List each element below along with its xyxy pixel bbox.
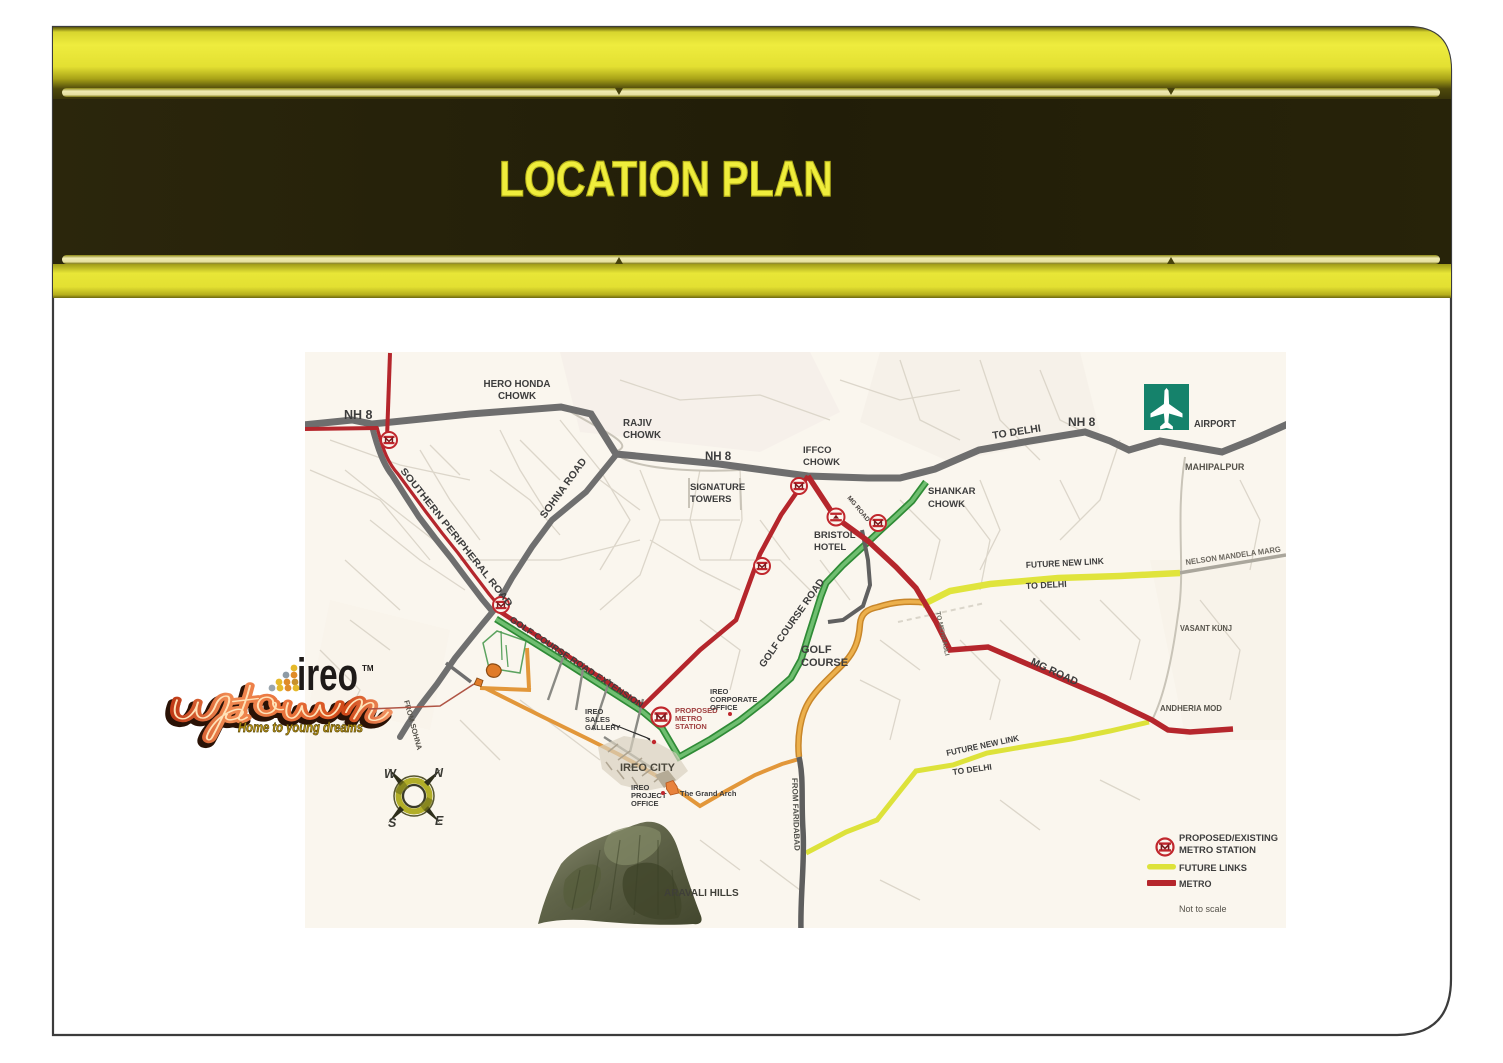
svg-text:Home to young dreams: Home to young dreams — [238, 720, 363, 735]
svg-text:S: S — [388, 816, 397, 830]
svg-text:STATION: STATION — [675, 722, 707, 731]
svg-text:ireo: ireo — [297, 649, 358, 700]
svg-text:HOTEL: HOTEL — [814, 542, 846, 553]
svg-text:OFFICE: OFFICE — [631, 799, 659, 808]
svg-text:FUTURE LINKS: FUTURE LINKS — [1179, 863, 1247, 873]
svg-text:AIRPORT: AIRPORT — [1194, 419, 1236, 430]
svg-text:N: N — [434, 766, 444, 780]
svg-text:TO DELHI: TO DELHI — [1026, 579, 1067, 591]
svg-text:COURSE: COURSE — [801, 657, 848, 669]
svg-text:The Grand Arch: The Grand Arch — [680, 789, 737, 798]
svg-text:RAJIV: RAJIV — [623, 418, 652, 429]
svg-text:TM: TM — [362, 664, 374, 673]
svg-text:Not to scale: Not to scale — [1179, 904, 1227, 914]
svg-text:IREO CITY: IREO CITY — [620, 762, 676, 774]
svg-text:NH 8: NH 8 — [705, 451, 732, 463]
svg-text:NH 8: NH 8 — [1068, 415, 1096, 429]
svg-text:GOLF: GOLF — [801, 644, 832, 656]
svg-text:PROPOSED/EXISTING: PROPOSED/EXISTING — [1179, 833, 1278, 843]
svg-text:OFFICE: OFFICE — [710, 703, 738, 712]
svg-text:W: W — [384, 767, 397, 781]
svg-text:ANDHERIA MOD: ANDHERIA MOD — [1160, 703, 1222, 713]
svg-text:IFFCO: IFFCO — [803, 445, 832, 456]
svg-text:MAHIPALPUR: MAHIPALPUR — [1185, 462, 1245, 472]
svg-text:GALLERY: GALLERY — [585, 723, 621, 732]
svg-text:VASANT KUNJ: VASANT KUNJ — [1180, 623, 1232, 633]
svg-text:CHOWK: CHOWK — [623, 430, 661, 441]
svg-text:CHOWK: CHOWK — [928, 499, 965, 510]
svg-text:SIGNATURE: SIGNATURE — [690, 482, 745, 493]
svg-text:TOWERS: TOWERS — [690, 494, 732, 505]
svg-text:CHOWK: CHOWK — [803, 457, 840, 468]
svg-text:METRO STATION: METRO STATION — [1179, 845, 1256, 855]
svg-text:ARAVALI HILLS: ARAVALI HILLS — [664, 888, 739, 899]
svg-text:NH 8: NH 8 — [344, 408, 373, 422]
svg-text:HERO HONDA: HERO HONDA — [484, 379, 551, 390]
svg-text:CHOWK: CHOWK — [498, 391, 536, 402]
svg-text:E: E — [435, 814, 444, 828]
svg-text:SHANKAR: SHANKAR — [928, 486, 976, 497]
svg-text:LOCATION PLAN: LOCATION PLAN — [499, 151, 833, 207]
svg-text:BRISTOL: BRISTOL — [814, 530, 856, 541]
svg-text:METRO: METRO — [1179, 879, 1212, 889]
